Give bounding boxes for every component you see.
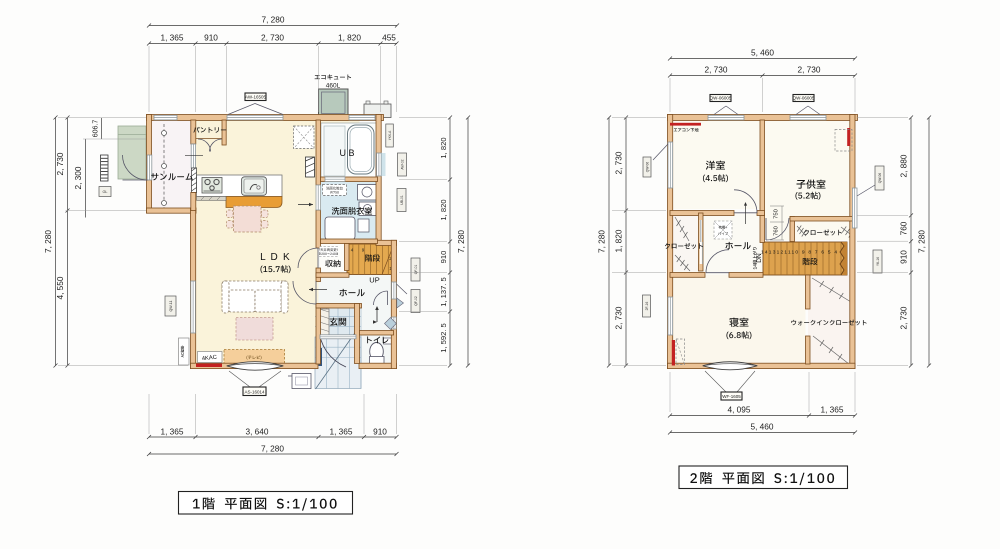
svg-text:DN: DN <box>756 253 763 263</box>
svg-text:7, 280: 7, 280 <box>43 230 53 253</box>
svg-text:2, 880: 2, 880 <box>899 154 909 177</box>
svg-text:910: 910 <box>373 427 387 437</box>
svg-text:2, 730: 2, 730 <box>55 152 65 175</box>
svg-text:AW-02: AW-02 <box>400 159 404 169</box>
svg-text:1, 820: 1, 820 <box>614 229 624 252</box>
svg-text:2F-16: 2F-16 <box>645 302 649 311</box>
svg-text:4, 095: 4, 095 <box>727 405 750 415</box>
svg-text:460L: 460L <box>326 83 341 90</box>
svg-text:GL: GL <box>102 190 107 194</box>
svg-text:760: 760 <box>774 226 780 236</box>
svg-text:2, 730: 2, 730 <box>614 151 624 174</box>
svg-text:1, 820: 1, 820 <box>338 33 361 43</box>
svg-text:UB-01: UB-01 <box>400 195 404 205</box>
svg-text:1, 820: 1, 820 <box>439 199 448 220</box>
svg-text:1, 365: 1, 365 <box>329 427 352 437</box>
svg-text:750: 750 <box>774 209 780 219</box>
svg-text:YKK-A: YKK-A <box>388 130 392 140</box>
svg-text:AW-16505: AW-16505 <box>245 95 267 100</box>
svg-text:2, 730: 2, 730 <box>614 306 624 329</box>
svg-text:7, 280: 7, 280 <box>597 230 607 253</box>
svg-text:5, 460: 5, 460 <box>751 48 774 58</box>
svg-text:QW-06005: QW-06005 <box>793 96 815 101</box>
svg-text:2, 300: 2, 300 <box>73 166 83 189</box>
svg-text:910: 910 <box>899 250 909 264</box>
svg-text:1, 820: 1, 820 <box>439 137 448 158</box>
svg-text:7, 280: 7, 280 <box>917 230 927 253</box>
svg-text:7, 280: 7, 280 <box>261 15 284 25</box>
svg-text:YK-16: YK-16 <box>876 257 880 266</box>
svg-text:7, 280: 7, 280 <box>261 444 284 454</box>
svg-text:QW-11: QW-11 <box>169 300 173 311</box>
svg-text:7, 280: 7, 280 <box>456 230 466 253</box>
svg-text:L D K: L D K <box>260 252 291 263</box>
svg-text:4, 550: 4, 550 <box>55 276 65 299</box>
svg-text:910: 910 <box>204 33 218 43</box>
svg-text:AS-16014: AS-16014 <box>244 390 265 395</box>
svg-text:1, 137. 5: 1, 137. 5 <box>439 277 448 307</box>
svg-text:1, 365: 1, 365 <box>820 405 843 415</box>
svg-text:3, 640: 3, 640 <box>245 427 268 437</box>
svg-text:U B: U B <box>339 148 354 158</box>
svg-text:606.7: 606.7 <box>93 120 100 138</box>
svg-text:WF-1605: WF-1605 <box>722 394 741 399</box>
svg-text:2, 730: 2, 730 <box>261 33 284 43</box>
svg-text:QF-01: QF-01 <box>414 265 418 275</box>
svg-text:2, 730: 2, 730 <box>704 65 727 75</box>
svg-text:760: 760 <box>899 221 909 235</box>
svg-text:1413121110 9 8 7 6 5 4: 1413121110 9 8 7 6 5 4 <box>761 250 837 256</box>
svg-text:QF-02: QF-02 <box>414 296 418 306</box>
svg-text:2, 730: 2, 730 <box>899 306 909 329</box>
svg-text:UP: UP <box>369 276 379 285</box>
svg-text:QW-06: QW-06 <box>878 173 882 184</box>
svg-text:QW-06005: QW-06005 <box>710 96 732 101</box>
svg-text:2, 730: 2, 730 <box>797 65 820 75</box>
svg-text:1, 592. 5: 1, 592. 5 <box>439 323 448 353</box>
svg-text:455: 455 <box>382 33 396 43</box>
svg-text:910: 910 <box>439 251 448 264</box>
svg-text:5, 460: 5, 460 <box>750 422 773 432</box>
svg-text:QW-06: QW-06 <box>645 162 649 173</box>
svg-text:1, 365: 1, 365 <box>160 427 183 437</box>
svg-text:1, 365: 1, 365 <box>160 33 183 43</box>
